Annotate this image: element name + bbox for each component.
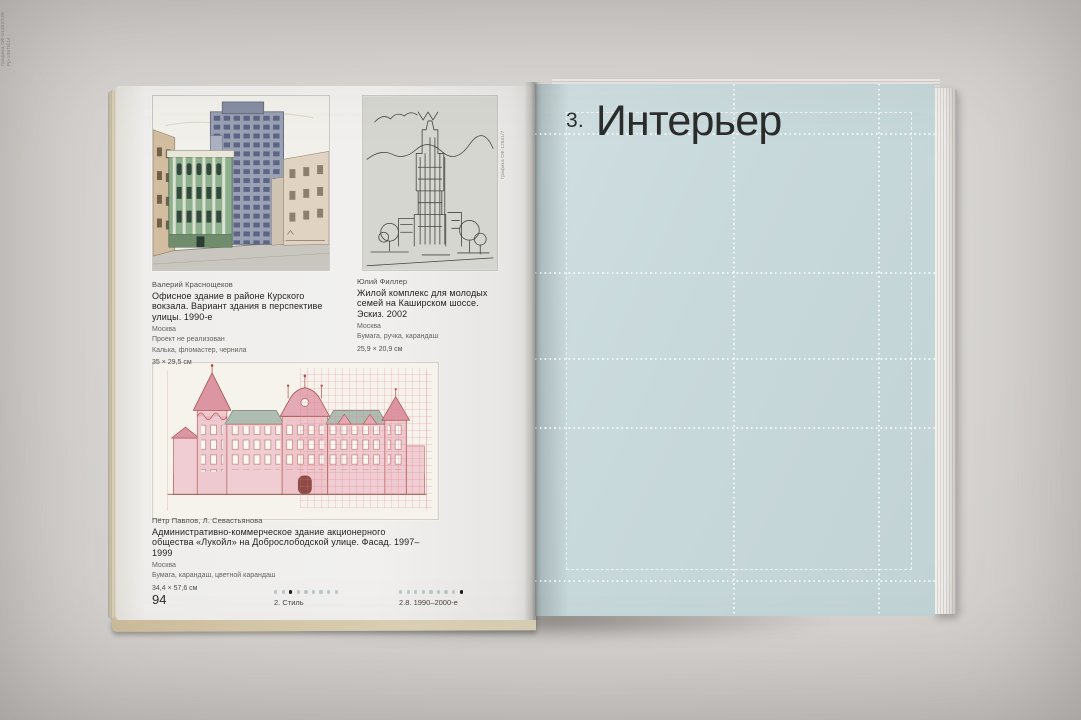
- section-progress-dots: [399, 590, 463, 594]
- figure-size: 25,9 × 20,9 см: [357, 346, 502, 353]
- grid-line-horizontal: [535, 580, 935, 582]
- grid-margin-box: [566, 112, 912, 570]
- figure-highrise-sketch: [362, 95, 498, 271]
- figure-media: Калька, фломастер, чернила: [152, 346, 342, 356]
- caption-figure-3: Пётр Павлов, Л. Севастьянова Администрат…: [152, 516, 422, 592]
- chapter-label: 2. Стиль: [274, 598, 338, 607]
- inventory-code-line-1: Графика ОФ-51452/126: [0, 0, 5, 66]
- figure-media: Бумага, карандаш, цветной карандаш: [152, 571, 422, 581]
- figure-title: Жилой комплекс для молодых семей на Каши…: [357, 288, 502, 319]
- chapter-number: 3.: [566, 109, 584, 133]
- figure-title: Административно-коммерческое здание акци…: [152, 527, 422, 558]
- figure-title: Офисное здание в районе Курского вокзала…: [152, 291, 342, 322]
- figure-media: Бумага, ручка, карандаш: [357, 332, 502, 342]
- figure-city: Москва: [152, 325, 342, 335]
- figure-lukoil-facade-drawing: [152, 362, 439, 520]
- inventory-code-line-2: Рр-1097/б14: [6, 0, 11, 66]
- figure-artist: Пётр Павлов, Л. Севастьянова: [152, 516, 422, 525]
- figure-artist: Юлий Филлер: [357, 277, 502, 286]
- chapter-heading: 3. Интерьер: [566, 100, 781, 143]
- figure-size: 35 × 29,5 см: [152, 359, 342, 366]
- caption-figure-2: Юлий Филлер Жилой комплекс для молодых с…: [357, 277, 502, 353]
- inventory-code-figure-2: Графика ОФ-12841/7: [500, 99, 505, 179]
- footer-chapter: 2. Стиль: [274, 590, 338, 607]
- page-number: 94: [152, 592, 166, 607]
- lukoil-facade-illustration: [153, 363, 438, 519]
- figure-city: Москва: [152, 561, 422, 571]
- footer-section: 2.8. 1990–2000-е: [399, 590, 463, 607]
- figure-note: Проект не реализован: [152, 335, 342, 345]
- caption-figure-1: Валерий Краснощеков Офисное здание в рай…: [152, 280, 342, 366]
- highrise-ink-sketch-illustration: [363, 96, 497, 270]
- page-block-right-edge: [934, 88, 957, 614]
- figure-city: Москва: [357, 322, 502, 332]
- figure-office-building-drawing: [152, 95, 330, 271]
- office-building-perspective-illustration: [153, 96, 329, 270]
- inventory-code-figure-3: Графика ОФ-51452/126 Рр-1097/б14: [0, 0, 1081, 66]
- chapter-title: Интерьер: [596, 100, 782, 143]
- figure-artist: Валерий Краснощеков: [152, 280, 342, 289]
- section-label: 2.8. 1990–2000-е: [399, 598, 463, 607]
- book-photo: Валерий Краснощеков Офисное здание в рай…: [0, 0, 1081, 720]
- chapter-progress-dots: [274, 590, 338, 594]
- book-gutter: [524, 82, 542, 620]
